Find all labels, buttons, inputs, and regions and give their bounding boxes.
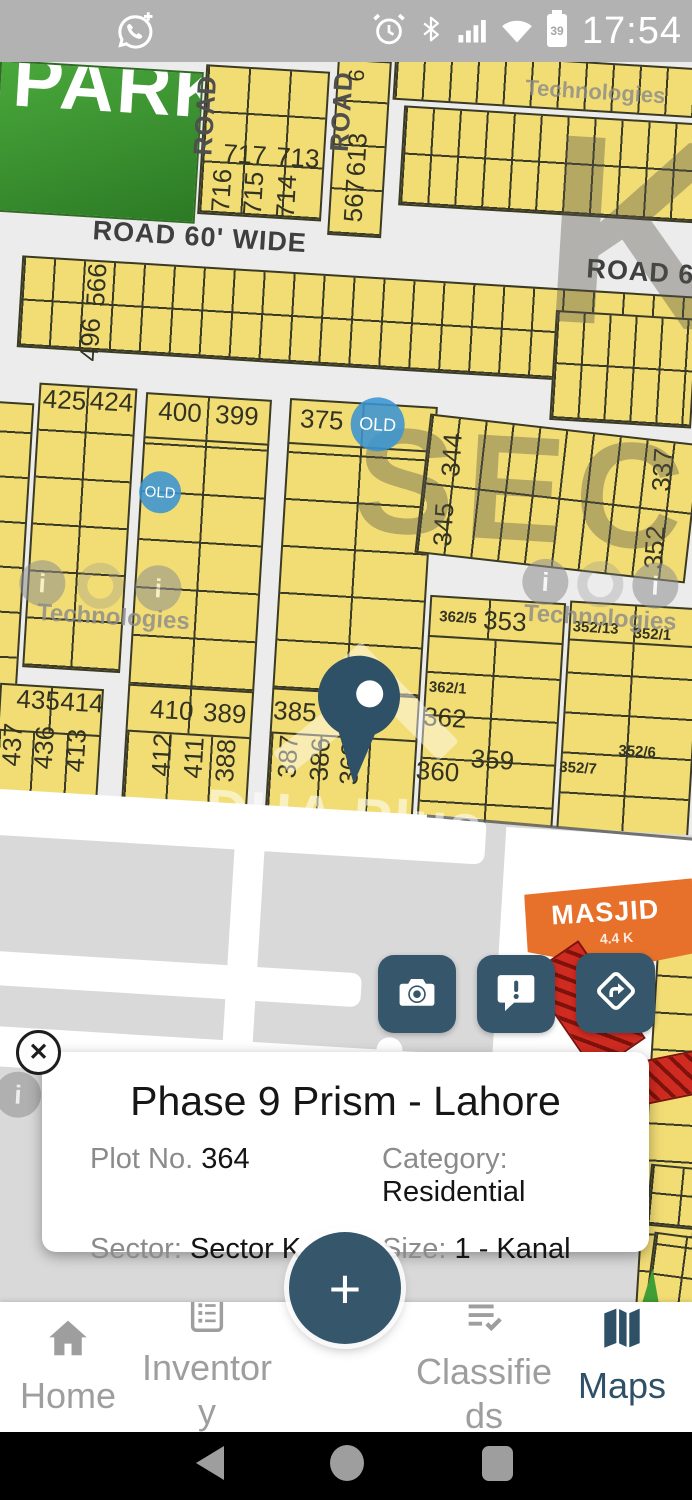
plot-label: 400 bbox=[157, 395, 202, 429]
inventory-icon bbox=[184, 1302, 230, 1346]
whatsapp-call-icon bbox=[112, 8, 158, 59]
camera-button[interactable] bbox=[378, 955, 456, 1033]
android-recents-button[interactable] bbox=[482, 1446, 513, 1481]
classifieds-icon bbox=[461, 1302, 507, 1350]
park-label: PARK bbox=[10, 60, 203, 137]
plot-no-value: 364 bbox=[201, 1143, 249, 1175]
plot-label: 567 bbox=[337, 178, 371, 223]
card-title: Phase 9 Prism - Lahore bbox=[42, 1078, 649, 1125]
sector-label: Sector: bbox=[90, 1233, 190, 1265]
directions-icon bbox=[592, 967, 640, 1020]
clock-time: 17:54 bbox=[582, 10, 682, 53]
camera-icon bbox=[395, 970, 439, 1019]
status-bar: 39 17:54 bbox=[0, 0, 692, 62]
plot-label: 714 bbox=[270, 174, 304, 219]
plot-label: 362/5 bbox=[439, 608, 478, 627]
plot-info-card: Phase 9 Prism - Lahore Plot No. 364 Cate… bbox=[42, 1052, 649, 1252]
directions-button[interactable] bbox=[576, 953, 655, 1033]
plot-label: 399 bbox=[214, 399, 259, 433]
plot-label: 352/7 bbox=[559, 759, 598, 778]
android-back-button[interactable] bbox=[196, 1446, 224, 1480]
nav-item-inventory[interactable]: Inventory bbox=[134, 1302, 280, 1432]
plot-label: 435 bbox=[16, 683, 61, 717]
road-label-60-wide: ROAD 60' WIDE bbox=[92, 215, 308, 259]
plot-label: 410 bbox=[149, 694, 194, 728]
maps-icon bbox=[597, 1304, 647, 1364]
plot-label: 717 bbox=[222, 138, 267, 172]
add-button[interactable]: + bbox=[289, 1232, 401, 1344]
sector-letter-watermark: K bbox=[533, 73, 692, 394]
plot-label: 414 bbox=[60, 686, 105, 720]
park-area[interactable]: PARK bbox=[0, 60, 204, 224]
alarm-icon bbox=[370, 10, 408, 53]
nav-label-classifieds: Classifieds bbox=[406, 1350, 562, 1432]
plot-label: 389 bbox=[202, 697, 247, 731]
plot-label: 713 bbox=[275, 141, 320, 175]
bluetooth-icon bbox=[416, 10, 446, 53]
plot-label: 424 bbox=[89, 385, 134, 419]
nav-item-maps[interactable]: Maps bbox=[572, 1304, 672, 1408]
android-navigation-bar bbox=[0, 1432, 692, 1500]
size-field: Size: 1 - Kanal bbox=[382, 1233, 649, 1266]
category-label: Category: bbox=[382, 1143, 508, 1175]
masjid-label: MASJID bbox=[550, 894, 660, 932]
report-button[interactable] bbox=[477, 955, 555, 1033]
plot-label: 437 bbox=[0, 722, 29, 767]
plot-label: 566 bbox=[80, 262, 114, 307]
report-bubble-icon bbox=[494, 970, 538, 1019]
battery-icon: 39 bbox=[544, 8, 570, 55]
plot-label: 411 bbox=[177, 736, 210, 779]
plot-label: 359 bbox=[470, 743, 515, 777]
category-value: Residential bbox=[382, 1176, 525, 1208]
sector-value: Sector K bbox=[190, 1233, 301, 1265]
svg-text:39: 39 bbox=[550, 24, 564, 38]
plot-label: 360 bbox=[415, 755, 460, 789]
home-icon bbox=[43, 1314, 93, 1374]
plot-block[interactable] bbox=[556, 638, 692, 843]
size-value: 1 - Kanal bbox=[455, 1233, 571, 1265]
wifi-icon bbox=[498, 10, 536, 53]
map-pin-tip-icon bbox=[331, 718, 381, 785]
map-pin[interactable] bbox=[308, 645, 409, 800]
plot-label: 413 bbox=[59, 728, 93, 773]
plus-icon: + bbox=[329, 1256, 362, 1321]
category-field: Category: Residential bbox=[382, 1143, 649, 1209]
road-label-vertical-1: ROAD bbox=[187, 74, 223, 156]
nav-label-maps: Maps bbox=[578, 1364, 666, 1408]
nav-label-home: Home bbox=[20, 1374, 116, 1418]
plot-label: 425 bbox=[42, 383, 87, 417]
nav-label-inventory: Inventory bbox=[134, 1346, 280, 1432]
plot-label: 353 bbox=[482, 605, 527, 639]
plot-no-field: Plot No. 364 bbox=[90, 1143, 382, 1209]
plot-label: 412 bbox=[145, 732, 179, 777]
plot-label: 352/6 bbox=[618, 742, 657, 761]
plot-label: 716 bbox=[205, 168, 239, 213]
masjid-size-label: 4.4 K bbox=[599, 929, 633, 947]
signal-icon bbox=[454, 10, 490, 53]
plot-label: 436 bbox=[28, 725, 62, 770]
close-card-button[interactable]: ✕ bbox=[16, 1030, 61, 1075]
plot-label: 715 bbox=[237, 171, 271, 216]
nav-item-home[interactable]: Home bbox=[18, 1314, 118, 1418]
plot-label: 613 bbox=[340, 132, 374, 177]
plot-block[interactable] bbox=[645, 1164, 692, 1235]
plot-no-label: Plot No. bbox=[90, 1143, 201, 1175]
nav-item-classifieds[interactable]: Classifieds bbox=[406, 1302, 562, 1432]
close-icon: ✕ bbox=[28, 1038, 48, 1067]
android-home-button[interactable] bbox=[330, 1445, 364, 1481]
plot-label: 496 bbox=[74, 317, 108, 362]
plot-label: 375 bbox=[299, 403, 344, 437]
plot-label: 362/1 bbox=[428, 678, 467, 697]
plot-label: 6 bbox=[344, 69, 371, 83]
